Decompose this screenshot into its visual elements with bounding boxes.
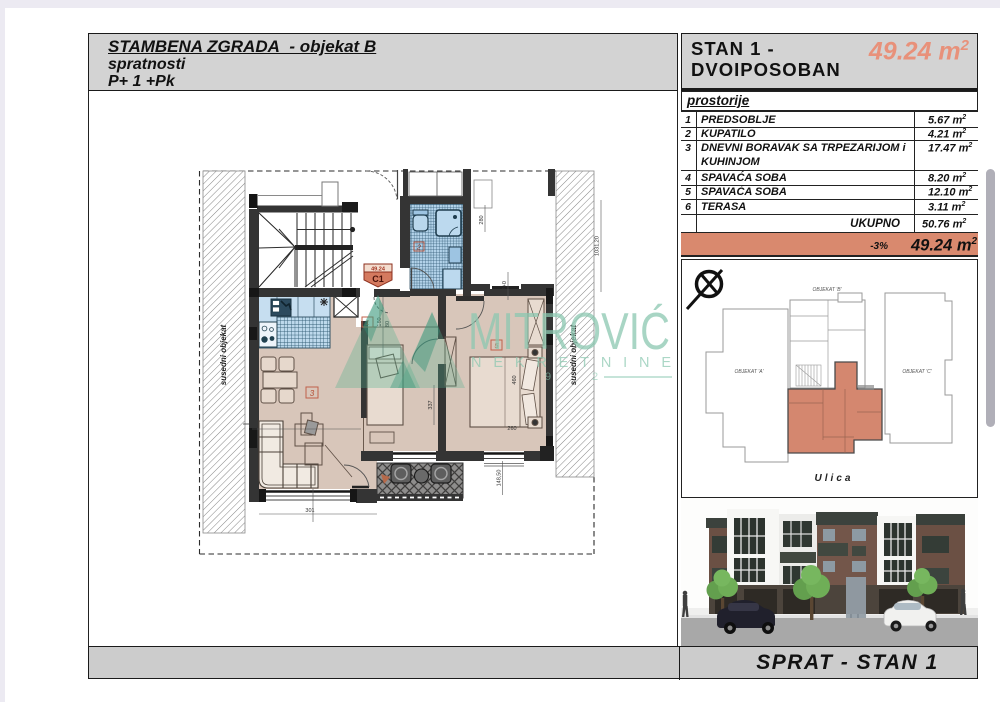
svg-text:3: 3	[310, 389, 315, 398]
svg-text:Ulica: Ulica	[815, 473, 854, 484]
svg-text:260: 260	[507, 426, 516, 432]
svg-text:2: 2	[592, 371, 598, 383]
svg-text:P+0: P+0	[502, 281, 508, 291]
svg-text:337: 337	[428, 400, 434, 409]
svg-text:301: 301	[305, 508, 314, 514]
svg-text:MITROVIĆ: MITROVIĆ	[468, 303, 670, 361]
svg-text:OBJEKAT 'B': OBJEKAT 'B'	[812, 287, 842, 293]
svg-text:280: 280	[479, 215, 485, 224]
svg-text:2: 2	[416, 245, 421, 252]
svg-text:C1: C1	[372, 274, 384, 284]
svg-text:OBJEKAT 'C': OBJEKAT 'C'	[902, 369, 932, 375]
svg-text:1031,20: 1031,20	[595, 236, 601, 256]
svg-text:susedni objekat: susedni objekat	[219, 324, 228, 385]
svg-text:460: 460	[512, 375, 518, 384]
svg-text:148,50: 148,50	[497, 470, 503, 487]
svg-text:OBJEKAT 'A': OBJEKAT 'A'	[734, 369, 764, 375]
svg-text:9: 9	[545, 371, 551, 383]
